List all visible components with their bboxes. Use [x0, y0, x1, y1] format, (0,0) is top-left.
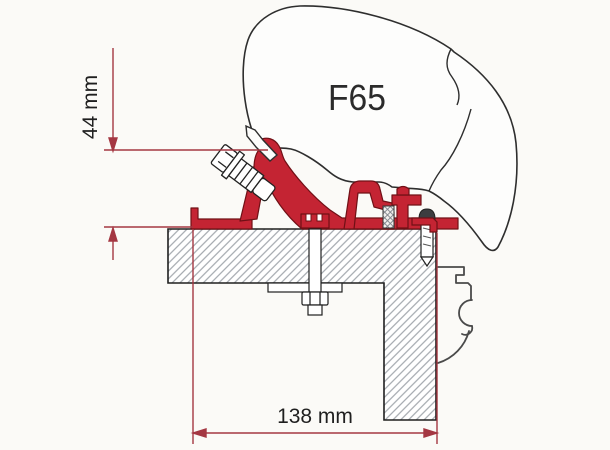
dimension-138mm-label: 138 mm — [277, 405, 353, 428]
under-plate — [268, 283, 342, 292]
adapter-diagram: F65 — [0, 0, 610, 450]
bracket-t-bump — [397, 187, 409, 196]
diagram-canvas: F65 — [0, 0, 610, 450]
dimension-44mm-label: 44 mm — [79, 75, 102, 139]
bracket-serration-block — [301, 214, 329, 228]
product-label: F65 — [328, 77, 386, 118]
center-bolt-shaft — [309, 229, 321, 292]
sectioned-boss — [383, 206, 394, 228]
center-bolt-nut — [302, 292, 328, 305]
center-bolt-end — [308, 305, 322, 315]
